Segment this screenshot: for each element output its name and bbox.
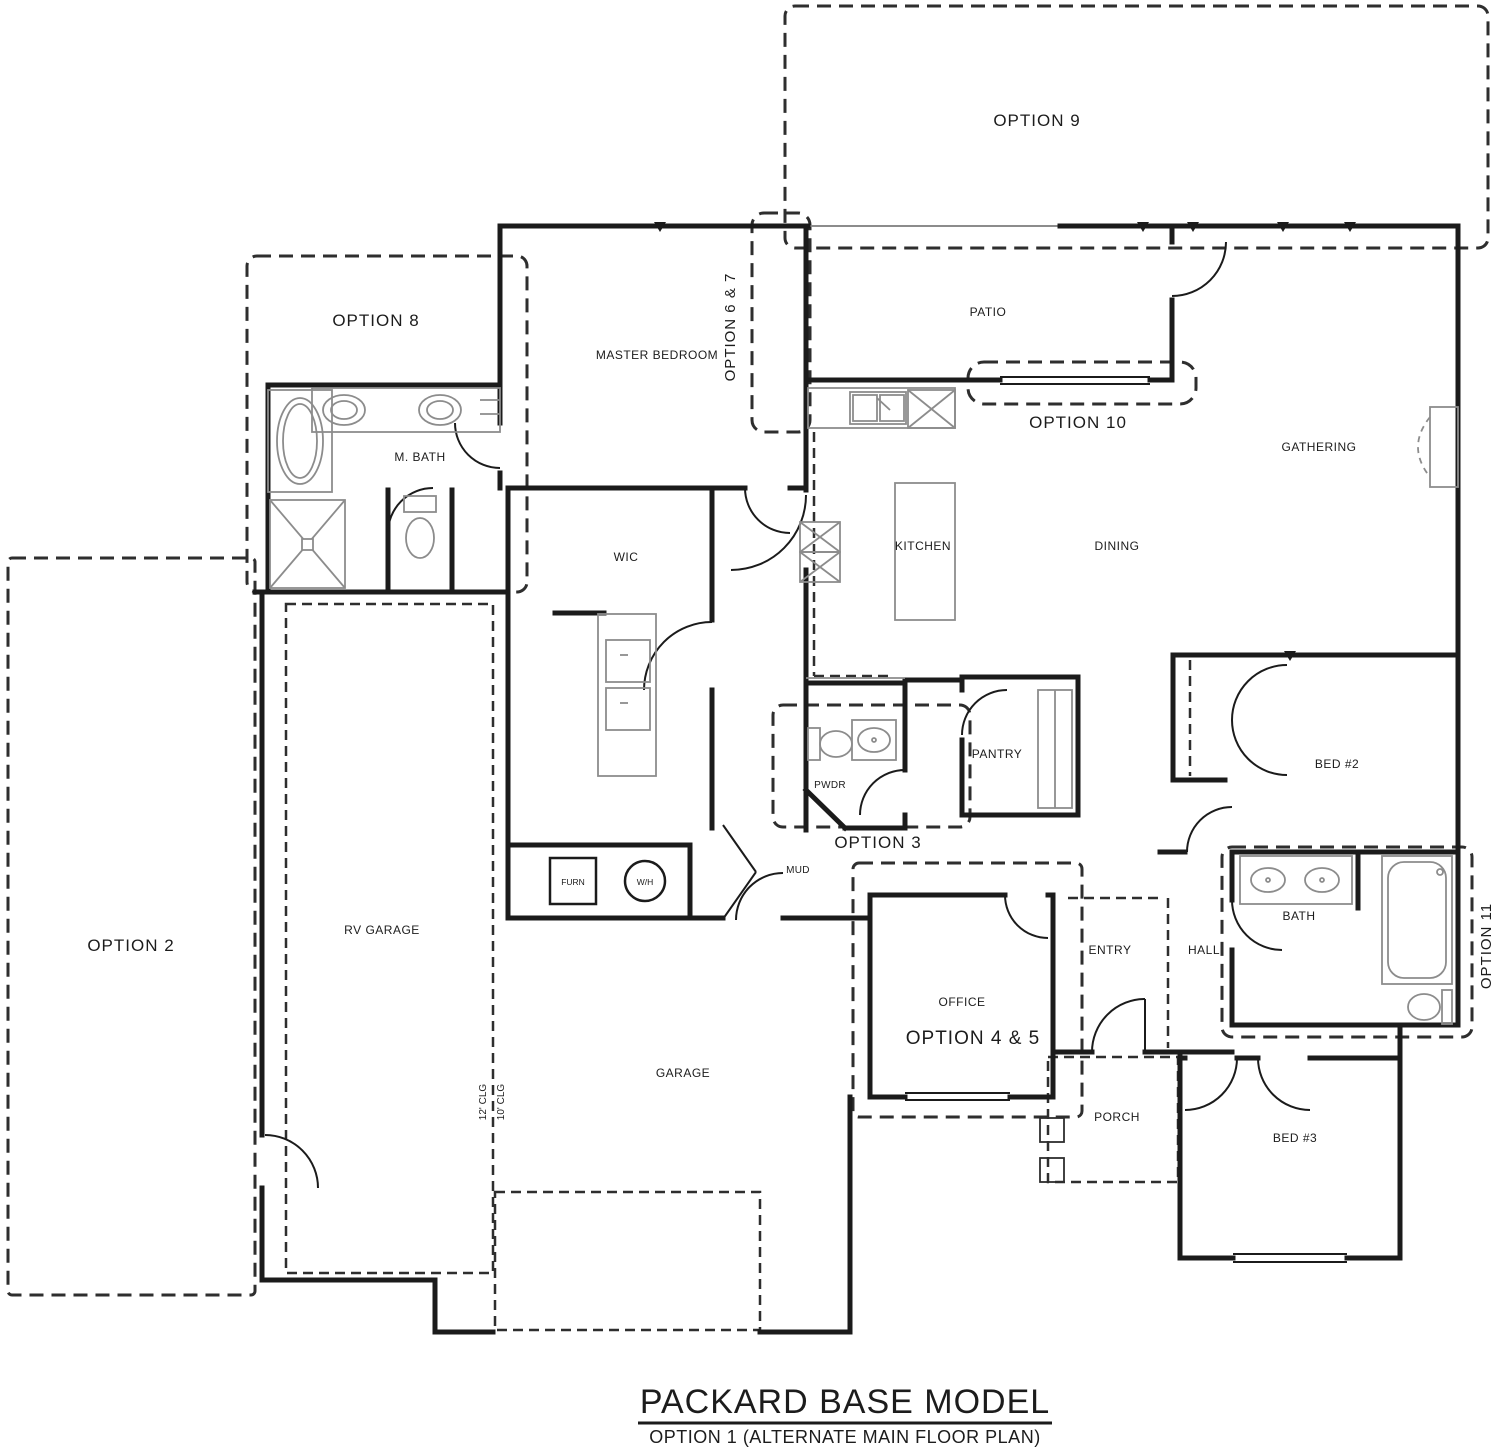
plan-title: PACKARD BASE MODEL (640, 1383, 1050, 1421)
mud-double-door-leaf-2 (723, 872, 756, 919)
title-block: PACKARD BASE MODEL OPTION 1 (ALTERNATE M… (638, 1383, 1052, 1447)
office-door-arc (1005, 895, 1048, 938)
label-bed3: BED #3 (1273, 1131, 1317, 1145)
label-garage: GARAGE (656, 1066, 710, 1080)
wc-door-arc (388, 488, 433, 533)
label-office: OFFICE (939, 995, 986, 1009)
label-option-2: OPTION 2 (87, 936, 174, 955)
label-patio: PATIO (970, 305, 1007, 319)
label-12-clg: 12' CLG (478, 1084, 489, 1121)
window-lines (905, 377, 1347, 1262)
dishwasher-icon (908, 390, 955, 428)
label-10-clg: 10' CLG (496, 1084, 507, 1121)
mud-double-door-leaf-1 (723, 825, 756, 872)
bath-toilet-icon (1408, 990, 1452, 1024)
option-2-boundary (8, 558, 255, 1295)
label-kitchen: KITCHEN (895, 539, 951, 553)
label-master-bedroom: MASTER BEDROOM (596, 348, 718, 362)
washer-dryer-icon (598, 614, 656, 776)
label-pantry: PANTRY (972, 747, 1023, 761)
label-pwdr: PWDR (814, 780, 846, 791)
fireplace-icon (1418, 407, 1458, 487)
label-dining: DINING (1095, 539, 1140, 553)
fixtures (268, 388, 1458, 1182)
option-3-boundary (773, 705, 970, 827)
label-option-10: OPTION 10 (1029, 413, 1127, 432)
bed2-closet-door-arc-1 (1232, 665, 1287, 720)
label-hall: HALL (1188, 943, 1220, 957)
bathtub-icon (268, 390, 332, 492)
toilet-icon (404, 496, 436, 558)
mb-hall-door-arc (745, 488, 790, 533)
floor-plan-page: OPTION 9 OPTION 8 OPTION 2 OPTION 10 OPT… (0, 0, 1500, 1449)
bed3-door-arc-2 (1258, 1058, 1310, 1110)
pwdr-door-arc (860, 770, 905, 815)
shower-icon (270, 500, 345, 588)
window-ticks (654, 222, 1356, 661)
option-11-boundary (1222, 847, 1472, 1037)
label-wic: WIC (614, 550, 639, 564)
mud-door-arc (736, 873, 783, 920)
label-option-11: OPTION 11 (1478, 903, 1495, 989)
rv-garage-clearance (286, 604, 493, 1273)
label-rv-garage: RV GARAGE (344, 923, 420, 937)
bed3-door-arc-1 (1185, 1058, 1237, 1110)
wic-door-arc (644, 622, 712, 690)
label-wh: W/H (637, 877, 654, 887)
label-option-4-5: OPTION 4 & 5 (906, 1028, 1040, 1049)
bath-vanity-icon (1240, 856, 1352, 904)
kitchen-sink-icon (850, 392, 906, 424)
patio-door-arc (1172, 242, 1226, 296)
garage-man-door-arc (265, 1135, 318, 1188)
bath-tub-icon (1382, 856, 1452, 984)
label-option-6-7: OPTION 6 & 7 (722, 273, 739, 382)
label-entry: ENTRY (1089, 943, 1132, 957)
kitchen-counter-icon (806, 388, 955, 678)
secondary-dashed-lines (286, 432, 1190, 1330)
option-9-boundary (785, 6, 1488, 248)
porch-post-icons (1040, 1118, 1064, 1182)
pwdr-sink-icon (852, 720, 896, 760)
label-bath: BATH (1282, 909, 1315, 923)
label-option-9: OPTION 9 (993, 111, 1080, 130)
label-option-8: OPTION 8 (332, 311, 419, 330)
plan-subtitle: OPTION 1 (ALTERNATE MAIN FLOOR PLAN) (649, 1427, 1040, 1447)
option-boundaries (8, 6, 1488, 1295)
garage-door-panel (495, 1192, 760, 1330)
label-mud: MUD (786, 865, 810, 876)
floor-plan-drawing: OPTION 9 OPTION 8 OPTION 2 OPTION 10 OPT… (0, 0, 1500, 1449)
vanity-sinks-icon (312, 388, 500, 432)
label-gathering: GATHERING (1282, 440, 1357, 454)
label-bed2: BED #2 (1315, 757, 1359, 771)
label-m-bath: M. BATH (394, 450, 445, 464)
label-furn: FURN (561, 877, 585, 887)
bed2-door-arc (1187, 807, 1232, 852)
bed2-closet-door-arc-2 (1232, 720, 1287, 775)
label-porch: PORCH (1094, 1110, 1140, 1124)
option-6-7-boundary (752, 213, 810, 432)
bath-door-arc (1232, 900, 1282, 950)
pwdr-toilet-icon (808, 728, 852, 760)
mbath-door-arc (455, 423, 500, 468)
label-option-3: OPTION 3 (834, 833, 921, 852)
kitchen-hall-door-arc (731, 495, 806, 570)
pantry-shelves-icon (1038, 690, 1072, 808)
front-door-arc (1092, 999, 1145, 1052)
